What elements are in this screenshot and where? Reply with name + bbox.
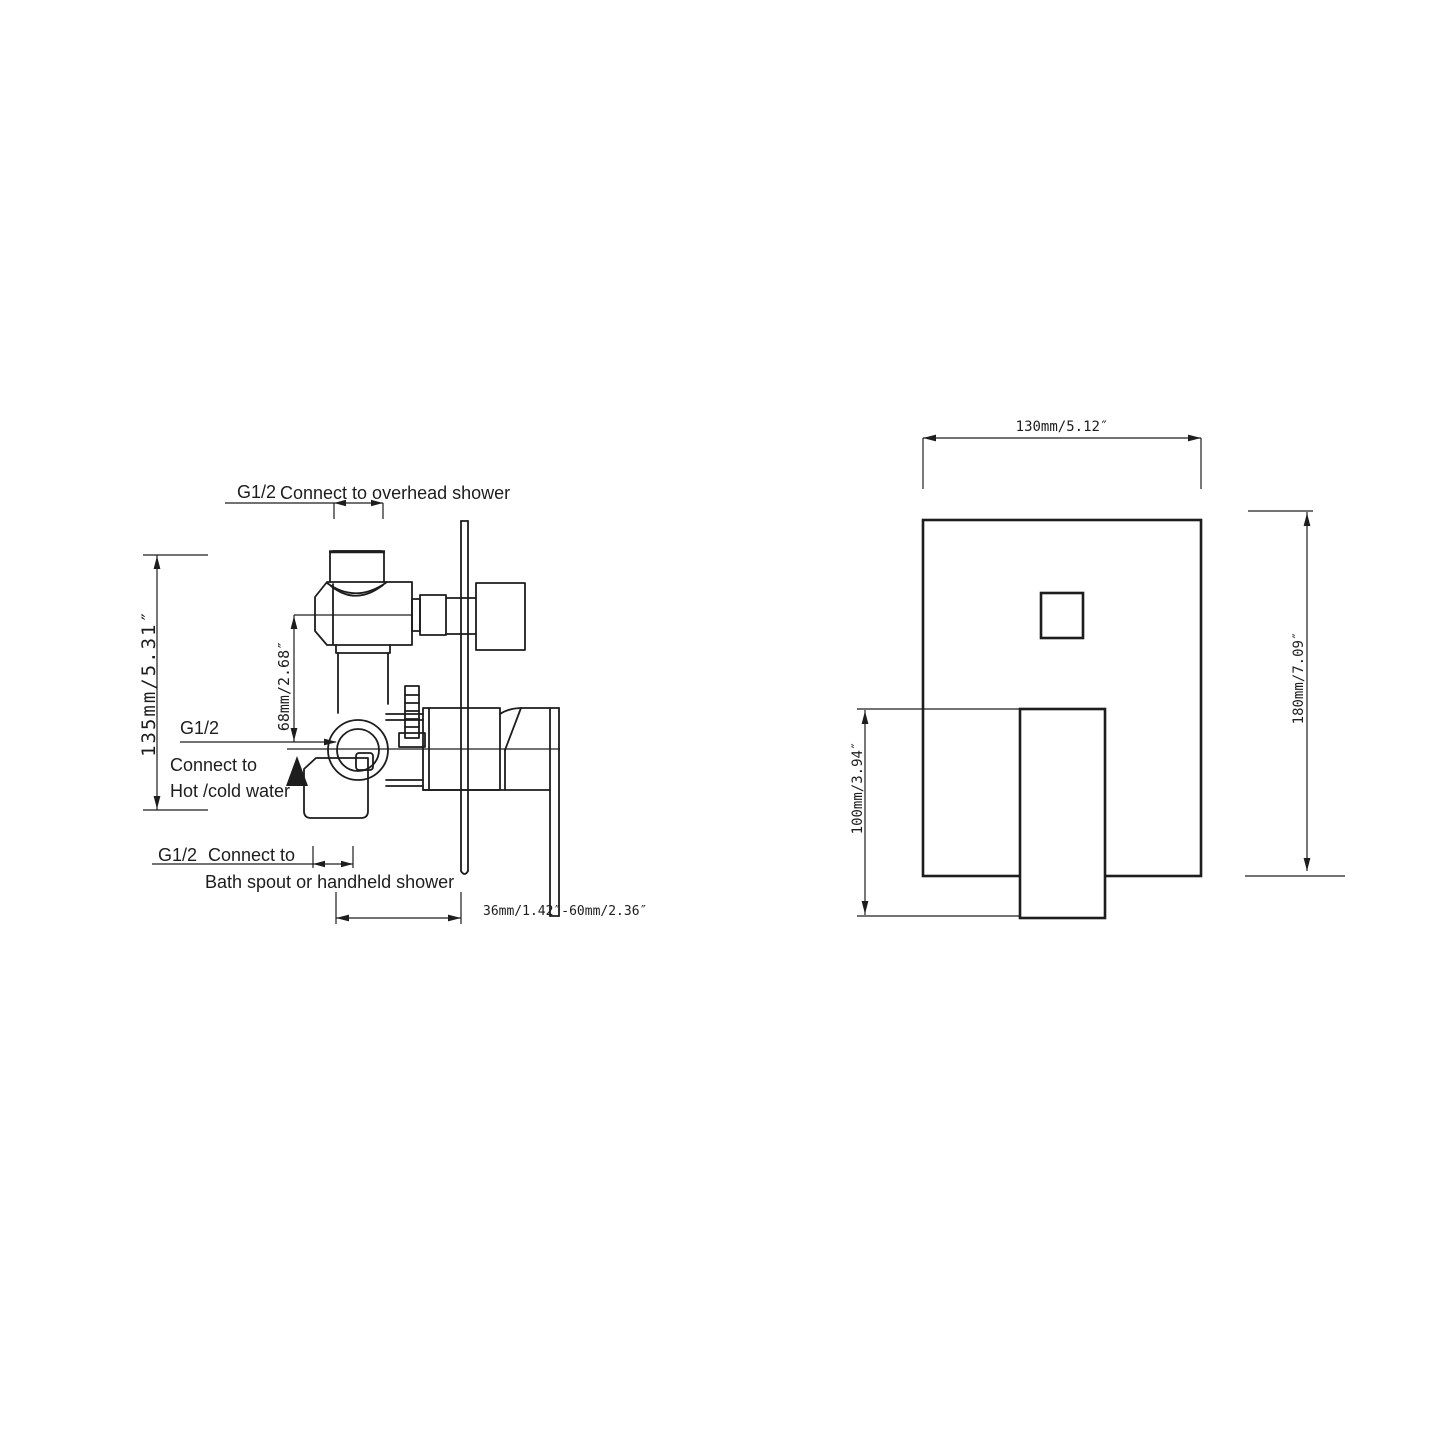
rod-body <box>405 686 419 738</box>
inlet-connect-label: Connect to <box>170 755 257 775</box>
front-diverter-square <box>1041 593 1083 638</box>
valve-body-outline <box>315 582 412 645</box>
arrowhead-right <box>341 861 353 867</box>
dim-width-text: 130mm/5.12″ <box>1016 419 1109 435</box>
dim-bottom-thread: G1/2 Connect to Bath spout or handheld s… <box>152 845 454 892</box>
plate-section-bottom-cap <box>461 871 468 874</box>
stem-neck <box>412 599 420 631</box>
top-thread-label: G1/2 <box>237 482 276 502</box>
diverter-stem <box>412 595 476 635</box>
bottom-outlet-pipe <box>304 758 368 818</box>
bottom-spout-label: Bath spout or handheld shower <box>205 872 454 892</box>
inlet-hotcold-label: Hot /cold water <box>170 781 290 801</box>
dim-mounting-depth: 36mm/1.42″-60mm/2.36″ <box>336 892 647 924</box>
arrowhead-right <box>448 915 461 922</box>
arrowhead-right <box>1188 435 1201 442</box>
arrowhead-up <box>862 711 869 724</box>
front-lever-handle <box>1020 709 1105 918</box>
bottom-thread-label: G1/2 <box>158 845 197 865</box>
handle-neck-arc <box>500 708 521 714</box>
dim-height-text: 135mm/5.31″ <box>138 609 160 757</box>
dim-offset-text: 68mm/2.68″ <box>275 641 293 731</box>
arrowhead-down <box>1304 858 1311 871</box>
handle-neck-slant <box>505 708 521 750</box>
arrowhead-left <box>313 861 325 867</box>
dim-height-text: 180mm/7.09″ <box>1291 632 1307 725</box>
arrowhead-up <box>291 616 298 629</box>
valve-body-lip <box>336 645 390 653</box>
shower-valve-technical-drawing: G1/2 Connect to overhead shower 135mm/5.… <box>0 0 1445 1445</box>
side-view: G1/2 Connect to overhead shower 135mm/5.… <box>138 482 647 924</box>
arrowhead-left <box>336 915 349 922</box>
arrowhead-up <box>1304 513 1311 526</box>
top-connect-label: Connect to overhead shower <box>280 483 510 503</box>
arrowhead-down <box>862 901 869 914</box>
dim-handle-height: 100mm/3.94″ <box>850 709 1019 916</box>
diverter-rod <box>399 686 425 747</box>
wall-plate-section <box>461 521 468 874</box>
valve-body <box>315 582 412 713</box>
dim-depth-text: 36mm/1.42″-60mm/2.36″ <box>483 904 647 919</box>
overhead-outlet-pipe <box>327 551 387 596</box>
stem-collar <box>420 595 446 635</box>
dim-handle-height-text: 100mm/3.94″ <box>850 742 866 835</box>
pipe-outline <box>330 551 384 582</box>
bottom-connect-label: Connect to <box>208 845 295 865</box>
inlet-port <box>328 714 423 786</box>
dim-plate-height: 180mm/7.09″ <box>1245 511 1345 876</box>
diverter-knob <box>476 583 525 650</box>
front-view: 100mm/3.94″ 130mm/5.12″ 180mm/7.09″ <box>850 419 1345 918</box>
rod-flange <box>399 733 425 747</box>
arrowhead-down <box>154 796 161 809</box>
drawing-canvas: G1/2 Connect to overhead shower 135mm/5.… <box>0 0 1445 1445</box>
label-inlet: G1/2 Connect to Hot /cold water <box>170 718 337 801</box>
dim-plate-width: 130mm/5.12″ <box>923 419 1201 489</box>
arrowhead-left <box>923 435 936 442</box>
dim-top-thread: G1/2 Connect to overhead shower <box>225 482 510 519</box>
arrowhead-up <box>154 556 161 569</box>
inlet-thread-label: G1/2 <box>180 718 219 738</box>
